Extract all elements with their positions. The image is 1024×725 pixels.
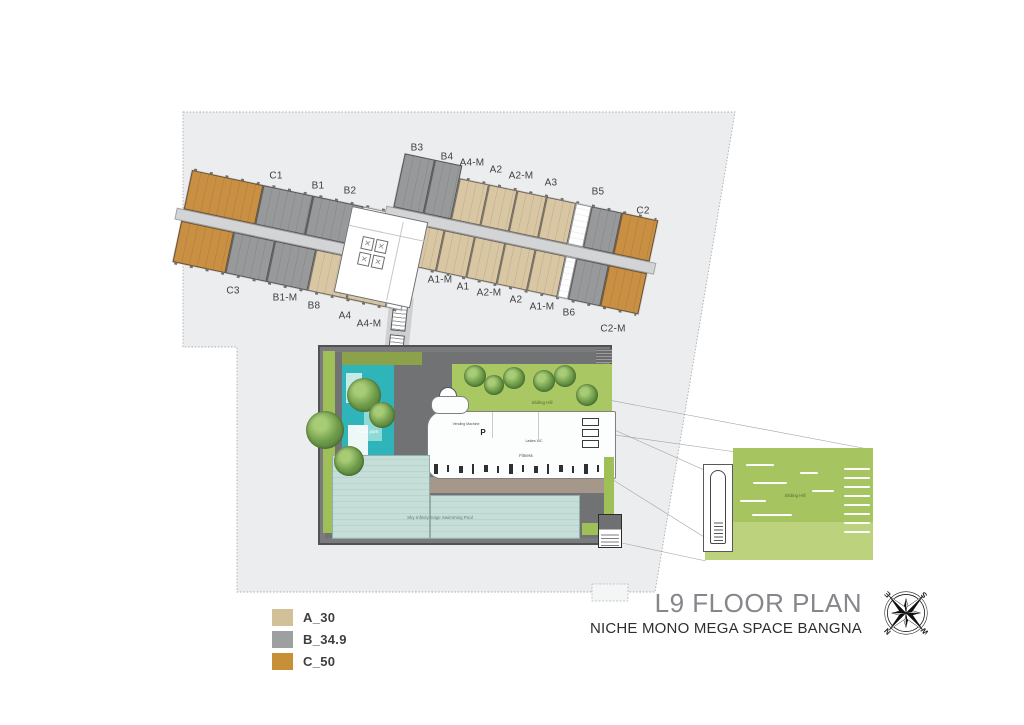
- amenity-deck: Aqua park Sliding Hill Vending Machine P…: [318, 345, 612, 545]
- elevator-icon: ✕: [360, 236, 374, 251]
- terrace-step-dash: [844, 513, 870, 515]
- terrace-step-dash: [740, 500, 766, 502]
- equipment-icon: [472, 464, 475, 474]
- legend-swatch: [272, 653, 293, 670]
- terrace-step-dash: [753, 482, 787, 484]
- legend-swatch: [272, 631, 293, 648]
- tree-icon: [334, 446, 364, 476]
- equipment-icon: [447, 465, 450, 472]
- locker-box: [582, 440, 599, 448]
- elevator-icon: ✕: [357, 252, 371, 267]
- legend-row: C_50: [272, 652, 347, 670]
- tree-icon: [464, 365, 486, 387]
- detail-sliding-hill-label: Sliding Hill: [765, 493, 825, 498]
- floor-plan-canvas: ✕ ✕ ✕ ✕ Aqua park Sliding Hill: [0, 0, 1024, 725]
- equipment-icon: [597, 465, 600, 472]
- stairs-icon: [601, 533, 619, 546]
- ladder-rungs: [714, 521, 723, 541]
- aqua-park-label: Aqua park: [342, 429, 394, 434]
- legend-label: C_50: [303, 654, 335, 669]
- equipment-icon: [572, 466, 575, 473]
- fitness-pavilion: Vending Machine P Ladies WC Fitness: [427, 411, 616, 479]
- terrace-step-dash: [844, 522, 870, 524]
- terrace-step-dash: [844, 504, 870, 506]
- equipment-icon: [497, 466, 500, 473]
- elevator-icon: ✕: [374, 239, 388, 254]
- terrace-step-dash: [800, 472, 818, 474]
- equipment-icon: [484, 465, 488, 472]
- page-title: L9 FLOOR PLAN: [520, 590, 862, 617]
- ladies-wc-label: Ladies WC: [514, 439, 554, 443]
- page-subtitle: NICHE MONO MEGA SPACE BANGNA: [520, 620, 862, 637]
- tree-icon: [533, 370, 555, 392]
- tree-icon: [576, 384, 598, 406]
- lounge-blob: [431, 396, 469, 414]
- equipment-icon: [434, 464, 438, 474]
- terrace-step-dash: [844, 468, 870, 470]
- equipment-icon: [459, 466, 463, 473]
- terrace-step-dash: [812, 490, 834, 492]
- partition-line: [538, 412, 539, 442]
- vending-label: Vending Machine: [436, 422, 496, 426]
- legend-row: A_30: [272, 608, 347, 626]
- core-line: [349, 225, 425, 242]
- equipment-icon: [534, 466, 538, 473]
- title-block: L9 FLOOR PLAN NICHE MONO MEGA SPACE BANG…: [520, 590, 862, 637]
- pool-label: Sky Infinity Edge Swimming Pool: [360, 515, 520, 520]
- fitness-label: Fitness: [506, 453, 546, 458]
- equipment-icon: [509, 464, 513, 474]
- tree-icon: [554, 365, 576, 387]
- terrace-step-dash: [752, 514, 792, 516]
- tree-icon: [503, 367, 525, 389]
- locker-box: [582, 429, 599, 437]
- parking-symbol: P: [476, 428, 490, 437]
- equipment-icon: [584, 464, 588, 474]
- locker-box: [582, 418, 599, 426]
- elevator-icon: ✕: [371, 255, 385, 270]
- terrace-step-dash: [844, 531, 870, 533]
- equipment-icon: [522, 465, 525, 472]
- equipment-icon: [547, 464, 550, 474]
- tree-icon: [484, 375, 504, 395]
- equipment-icon: [559, 465, 563, 472]
- legend-row: B_34.9: [272, 630, 347, 648]
- terrace-step-dash: [844, 486, 870, 488]
- stair-tower: [598, 514, 622, 548]
- legend-label: B_34.9: [303, 632, 347, 647]
- legend-label: A_30: [303, 610, 335, 625]
- terrace-step-dash: [746, 464, 774, 466]
- partition-line: [492, 412, 493, 438]
- terrace-step-dash: [844, 495, 870, 497]
- hedge-band: [342, 352, 422, 365]
- terrace-step-dash: [844, 477, 870, 479]
- slide-icon: [710, 470, 726, 544]
- legend-swatch: [272, 609, 293, 626]
- detail-slide-panel: [703, 464, 733, 552]
- tree-icon: [306, 411, 344, 449]
- tree-icon: [369, 402, 395, 428]
- stairs-hatch: [596, 349, 612, 363]
- unit-type-legend: A_30B_34.9C_50: [272, 608, 347, 674]
